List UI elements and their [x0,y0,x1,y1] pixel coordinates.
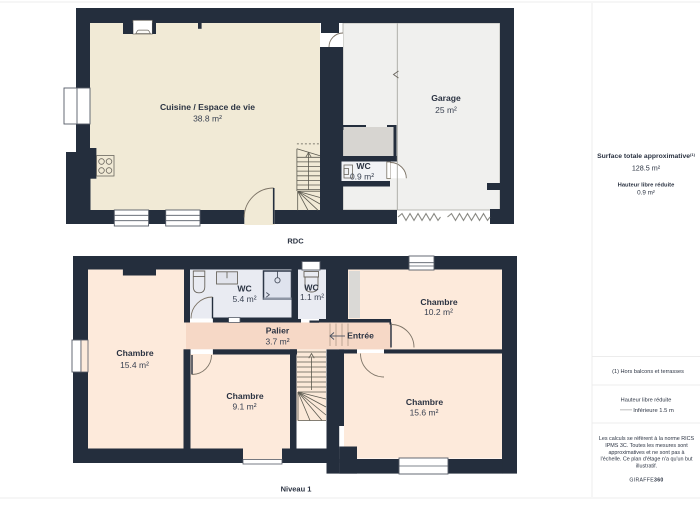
svg-text:15.6 m²: 15.6 m² [410,408,439,418]
svg-text:38.8 m²: 38.8 m² [193,114,222,124]
svg-text:IPMS 3C. Toutes les mesures so: IPMS 3C. Toutes les mesures sont [605,443,688,449]
svg-text:Hauteur libre réduite: Hauteur libre réduite [618,183,675,189]
svg-text:Les calculs se réfèrent à la n: Les calculs se réfèrent à la norme RICS [599,436,695,442]
svg-text:10.2 m²: 10.2 m² [424,307,453,317]
svg-text:Chambre: Chambre [420,297,457,307]
svg-text:5.4 m²: 5.4 m² [232,294,256,304]
svg-text:Garage: Garage [431,93,461,103]
svg-text:(1) Hors balcons et terrasses: (1) Hors balcons et terrasses [612,369,684,375]
svg-text:GIRAFFE360: GIRAFFE360 [629,478,663,484]
svg-text:Palier: Palier [266,326,290,336]
svg-text:25 m²: 25 m² [435,105,457,115]
svg-text:0.9 m²: 0.9 m² [637,190,655,197]
svg-text:RDC: RDC [287,237,304,246]
svg-text:1.1 m²: 1.1 m² [300,292,324,302]
svg-text:Chambre: Chambre [226,391,263,401]
svg-text:Surface totale approximative(1: Surface totale approximative(1) [597,152,695,160]
svg-text:0.9 m²: 0.9 m² [350,171,374,181]
svg-text:Hauteur libre réduite: Hauteur libre réduite [621,398,672,404]
svg-text:Cuisine / Espace de vie: Cuisine / Espace de vie [160,102,255,112]
svg-text:Entrée: Entrée [347,331,374,341]
svg-text:WC: WC [237,284,251,294]
svg-text:Chambre: Chambre [406,397,443,407]
svg-text:9.1 m²: 9.1 m² [232,402,256,412]
svg-text:l'échelle. Ce plan d'étage n'a: l'échelle. Ce plan d'étage n'a qu'un but [601,457,693,463]
svg-text:WC: WC [304,282,318,292]
svg-text:illustratif.: illustratif. [636,464,657,470]
svg-text:128.5 m²: 128.5 m² [632,164,661,173]
svg-text:3.7 m²: 3.7 m² [265,337,289,347]
svg-text:Chambre: Chambre [116,348,153,358]
svg-text:WC: WC [356,161,370,171]
svg-text:Niveau 1: Niveau 1 [281,485,312,494]
svg-text:approximatives et ne sont pas: approximatives et ne sont pas à [608,450,684,456]
svg-text:Inférieure 1.5 m: Inférieure 1.5 m [633,408,674,414]
svg-text:15.4 m²: 15.4 m² [120,360,149,370]
